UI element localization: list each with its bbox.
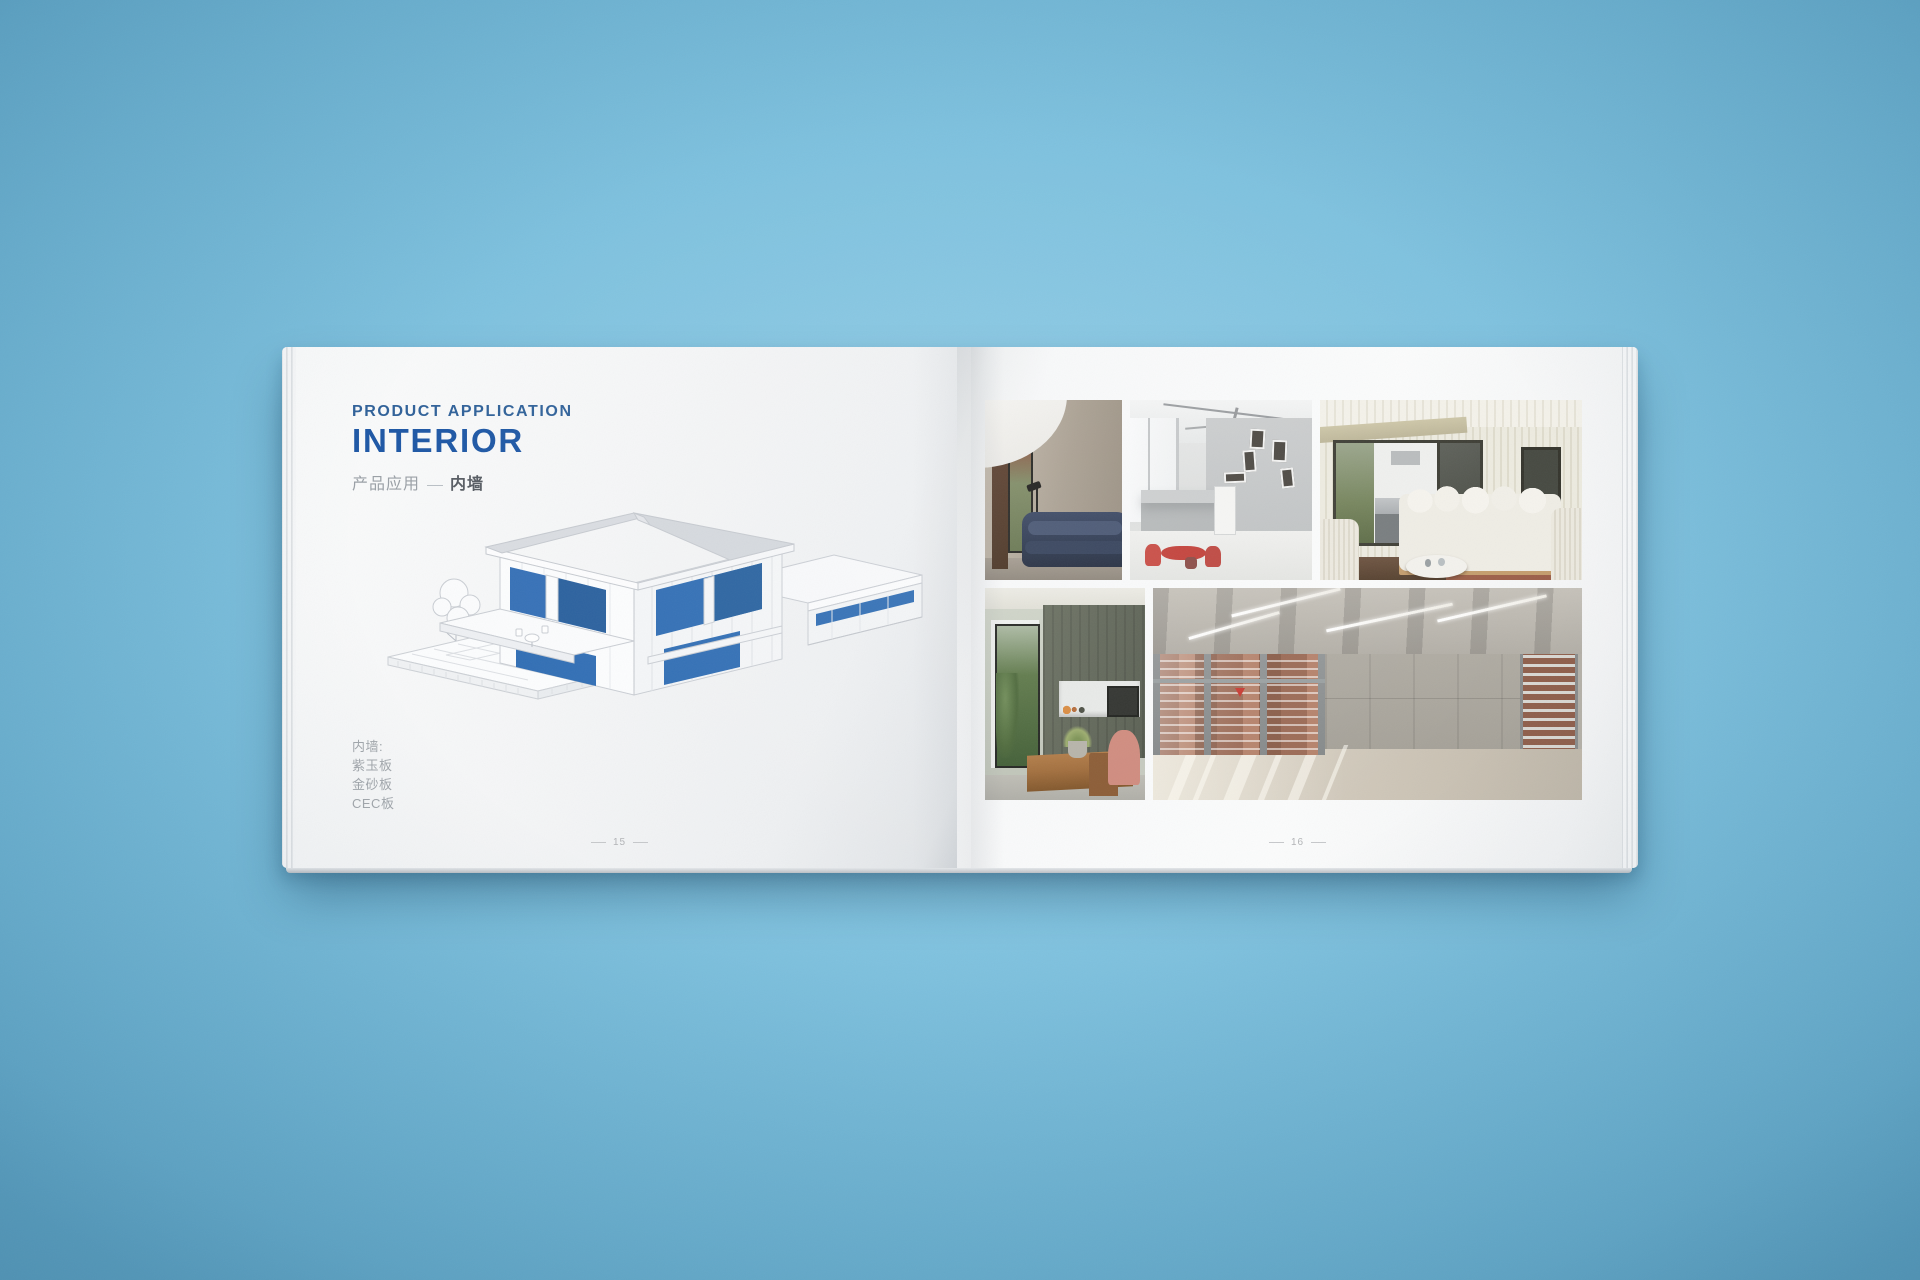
floor-glow — [1153, 749, 1346, 800]
page-number-left: 15 — [282, 837, 957, 848]
subtitle-dash — [427, 485, 443, 486]
page-stack-edge-left — [282, 347, 296, 868]
plants — [996, 673, 1018, 758]
hatch-window — [1107, 686, 1139, 717]
materials-list: 内墙: 紫玉板 金砂板 CEC板 — [352, 737, 394, 813]
panel-joint — [1325, 698, 1522, 699]
small-window — [1242, 450, 1257, 473]
materials-title: 内墙: — [352, 737, 394, 756]
red-chair — [1205, 546, 1221, 568]
eyebrow-text: PRODUCT APPLICATION — [352, 403, 573, 421]
mezzanine-slab — [1141, 490, 1221, 503]
desk-background: PRODUCT APPLICATION INTERIOR 产品应用 内墙 — [0, 0, 1920, 1280]
stool — [1185, 557, 1198, 570]
page-number-dash — [633, 842, 648, 843]
material-item: 紫玉板 — [352, 756, 394, 775]
page-number-dash — [591, 842, 606, 843]
photo-concrete-lounge — [985, 400, 1122, 580]
page-number-dash — [1311, 842, 1326, 843]
photo-concrete-hall — [1153, 588, 1582, 800]
transom-bar — [1153, 679, 1325, 683]
house-cutaway-illustration — [382, 487, 942, 737]
title-block: PRODUCT APPLICATION INTERIOR 产品应用 内墙 — [352, 403, 573, 494]
page-number-dash — [1269, 842, 1284, 843]
page-title: INTERIOR — [352, 424, 573, 458]
wicker-armchair — [1320, 519, 1359, 580]
page-number-value: 15 — [613, 837, 626, 848]
navy-sofa — [1022, 512, 1122, 568]
page-number-value: 16 — [1291, 837, 1304, 848]
small-window — [1280, 468, 1295, 489]
photo-cream-veranda — [1320, 400, 1582, 580]
small-window — [1249, 428, 1265, 449]
material-item: CEC板 — [352, 794, 394, 813]
photo-kitchen-hatch — [985, 588, 1145, 800]
left-page: PRODUCT APPLICATION INTERIOR 产品应用 内墙 — [282, 347, 957, 868]
pass-through-hatch — [1059, 681, 1141, 717]
range-hood — [1391, 451, 1420, 465]
red-table — [1161, 546, 1207, 560]
pink-chair — [1108, 730, 1140, 785]
page-stack-edge-right — [1622, 347, 1638, 868]
small-window — [1271, 439, 1287, 462]
mezzanine-underside — [1141, 503, 1221, 534]
red-chair — [1145, 544, 1161, 566]
concrete-wall — [1325, 645, 1522, 755]
round-coffee-table — [1406, 555, 1466, 578]
right-page: 16 — [957, 347, 1638, 868]
white-door — [1214, 486, 1236, 535]
small-window — [1224, 472, 1247, 484]
plant-pot — [1068, 741, 1087, 758]
wicker-armchair — [1551, 508, 1582, 580]
photo-white-loft — [1130, 400, 1312, 580]
material-item: 金砂板 — [352, 775, 394, 794]
hatch-items — [1063, 704, 1087, 715]
brochure-spread: PRODUCT APPLICATION INTERIOR 产品应用 内墙 — [282, 347, 1638, 868]
louvered-window — [1520, 643, 1577, 761]
page-number-right: 16 — [957, 837, 1638, 848]
